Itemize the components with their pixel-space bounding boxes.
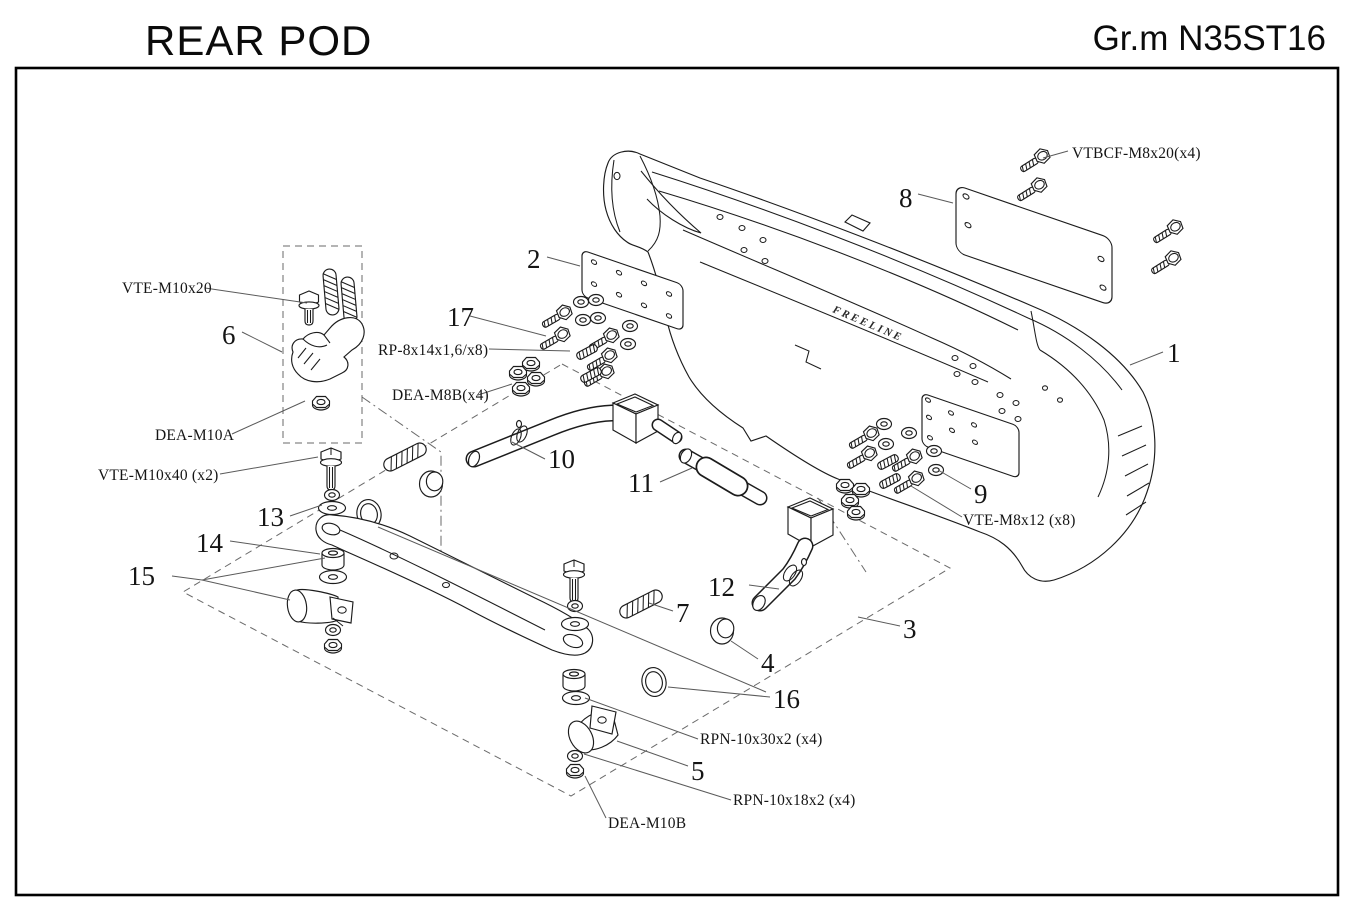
callout-11: 11	[628, 468, 654, 498]
callout-3: 3	[903, 614, 917, 644]
label-vte-m10x40: VTE-M10x40 (x2)	[98, 467, 219, 484]
callout-13: 13	[257, 502, 284, 532]
callout-9: 9	[974, 479, 988, 509]
label-vte-m8x12: VTE-M8x12 (x8)	[963, 512, 1076, 529]
page-title: REAR POD	[145, 17, 372, 64]
callout-14: 14	[196, 528, 224, 558]
callout-4: 4	[761, 648, 775, 678]
label-rpn-10x18x2: RPN-10x18x2 (x4)	[733, 792, 855, 809]
callout-12: 12	[708, 572, 735, 602]
callout-10: 10	[548, 444, 575, 474]
callout-15: 15	[128, 561, 155, 591]
callout-1: 1	[1167, 338, 1181, 368]
callout-17: 17	[447, 302, 474, 332]
label-rp-8x14: RP-8x14x1,6/x8)	[378, 342, 488, 359]
label-vte-m10x20: VTE-M10x20	[122, 280, 212, 297]
diagram-canvas: REAR POD Gr.m N35ST16	[0, 0, 1352, 910]
label-dea-m10a: DEA-M10A	[155, 427, 235, 444]
callout-2: 2	[527, 244, 541, 274]
callout-6: 6	[222, 320, 236, 350]
callout-16: 16	[773, 684, 800, 714]
label-dea-m8b: DEA-M8B(x4)	[392, 387, 489, 404]
group-code: Gr.m N35ST16	[1093, 19, 1326, 58]
label-dea-m10b: DEA-M10B	[608, 815, 686, 832]
callout-7: 7	[676, 598, 690, 628]
label-vtbcf-m8x20: VTBCF-M8x20(x4)	[1072, 145, 1201, 162]
callout-5: 5	[691, 756, 705, 786]
parts-diagram-page: REAR POD Gr.m N35ST16	[0, 0, 1352, 910]
label-rpn-10x30x2: RPN-10x30x2 (x4)	[700, 731, 822, 748]
callout-8: 8	[899, 183, 913, 213]
